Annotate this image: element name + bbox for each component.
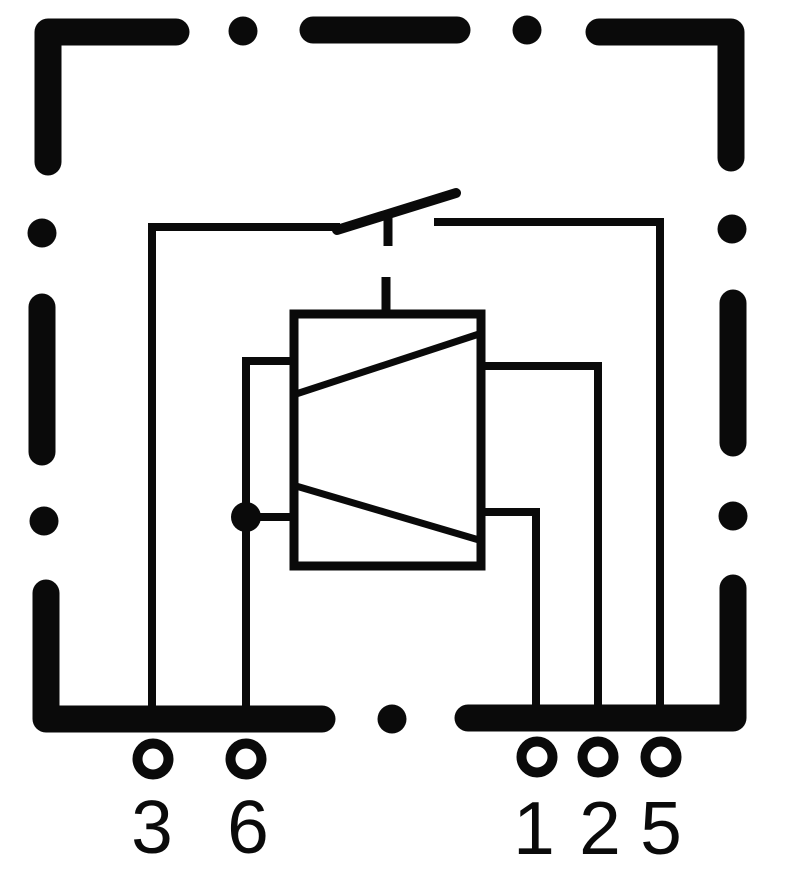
- pin-2-terminal: [583, 742, 614, 773]
- housing-dot-right-1: [718, 215, 747, 244]
- wire-coil-lower-to-pin1: [481, 512, 536, 716]
- wire-pin6-to-coil-upper: [246, 361, 294, 716]
- junction-dot: [231, 502, 261, 532]
- pin-6-terminal: [231, 744, 262, 775]
- housing-dot-left-1: [28, 219, 57, 248]
- relay-schematic-canvas: 3 6 1 2 5: [0, 0, 800, 877]
- pin-1-label: 1: [513, 786, 555, 870]
- housing-dot-right-2: [719, 502, 748, 531]
- internal-circuit: [152, 193, 660, 716]
- housing-dot-top-2: [513, 16, 542, 45]
- housing-dot-top-1: [229, 17, 258, 46]
- pin-3-label: 3: [131, 785, 173, 869]
- housing-corner-bottom-left: [46, 593, 322, 719]
- pin-3-terminal: [138, 744, 169, 775]
- housing-dot-left-2: [30, 507, 59, 536]
- pin-5-terminal: [646, 742, 677, 773]
- relay-coil-box: [294, 314, 481, 566]
- pin-6-label: 6: [227, 785, 269, 869]
- terminals: [138, 742, 677, 775]
- terminal-labels: 3 6 1 2 5: [131, 785, 682, 870]
- housing-dot-bottom: [378, 705, 407, 734]
- housing-corner-top-left: [48, 32, 176, 162]
- relay-schematic-drawing: 3 6 1 2 5: [0, 0, 800, 877]
- pin-1-terminal: [522, 742, 553, 773]
- pin-2-label: 2: [579, 786, 621, 870]
- pin-5-label: 5: [640, 786, 682, 870]
- housing-corner-top-right: [599, 32, 731, 158]
